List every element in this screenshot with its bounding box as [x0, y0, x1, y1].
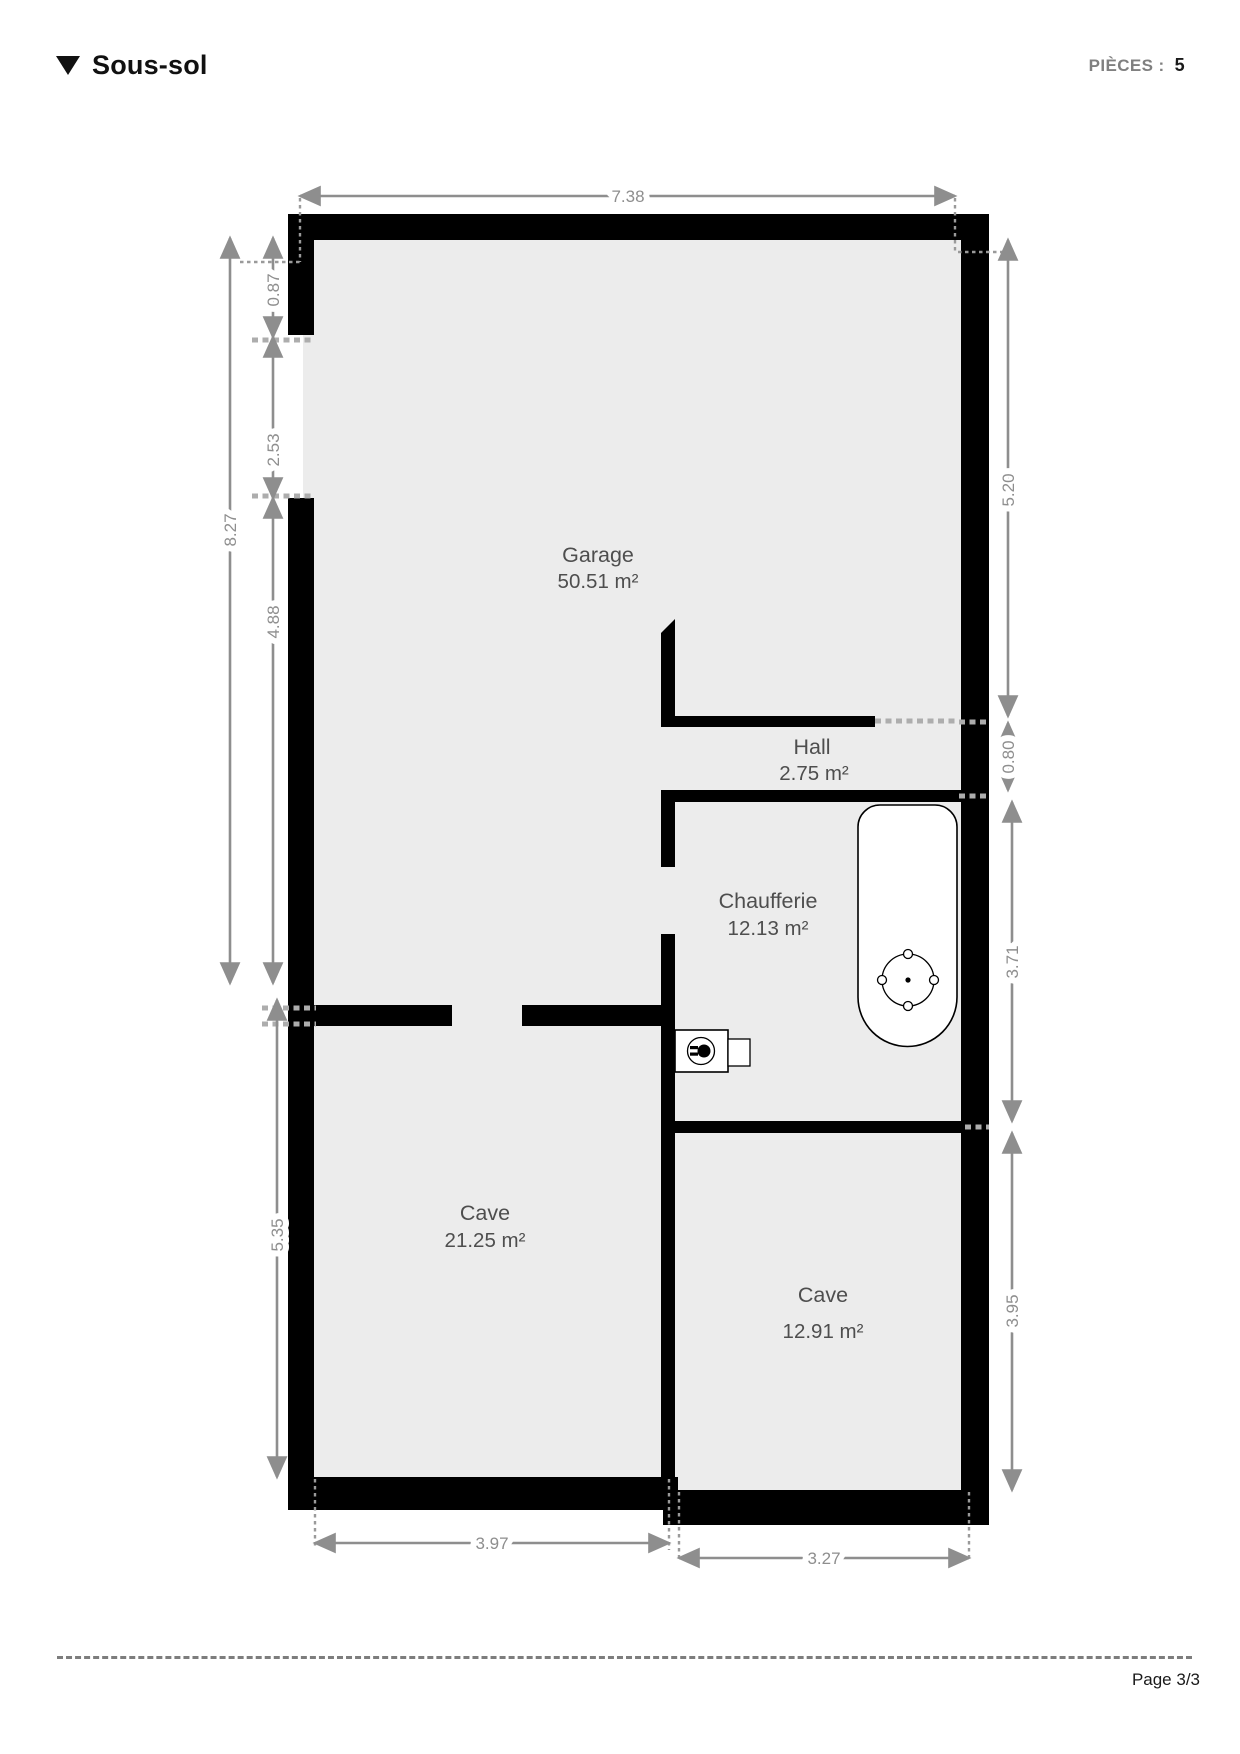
svg-text:Cave: Cave — [460, 1201, 510, 1225]
page-number: Page 3/3 — [1132, 1670, 1200, 1690]
svg-text:12.91 m²: 12.91 m² — [783, 1320, 864, 1343]
dim-left-c: 4.88 — [264, 605, 283, 638]
water-heater-symbol — [858, 805, 957, 1047]
svg-text:Chaufferie: Chaufferie — [719, 889, 818, 913]
svg-text:12.13 m²: 12.13 m² — [728, 917, 809, 940]
svg-text:Cave: Cave — [798, 1283, 848, 1307]
dim-right-b: 0.80 — [999, 740, 1018, 773]
svg-text:2.75 m²: 2.75 m² — [779, 762, 849, 785]
dim-left-outer: 8.27 — [221, 513, 240, 546]
dim-left-b: 2.53 — [264, 433, 283, 466]
dim-bottom-b: 3.27 — [807, 1549, 840, 1568]
svg-text:50.51 m²: 50.51 m² — [558, 570, 639, 593]
floorplan-drawing: 7.38 8.27 0.87 2.53 4.88 5.35 5.20 0.80 … — [0, 0, 1240, 1754]
dim-right-a: 5.20 — [999, 473, 1018, 506]
dim-top: 7.38 — [611, 187, 644, 206]
svg-text:Garage: Garage — [562, 543, 634, 567]
dim-left-d: 5.35 — [268, 1218, 287, 1251]
footer-divider — [57, 1656, 1192, 1659]
dim-right-c: 3.71 — [1003, 945, 1022, 978]
dim-right-d: 3.95 — [1003, 1294, 1022, 1327]
svg-text:21.25 m²: 21.25 m² — [445, 1229, 526, 1252]
dim-bottom-a: 3.97 — [475, 1534, 508, 1553]
svg-text:Hall: Hall — [793, 735, 830, 759]
dim-left-a: 0.87 — [264, 273, 283, 306]
